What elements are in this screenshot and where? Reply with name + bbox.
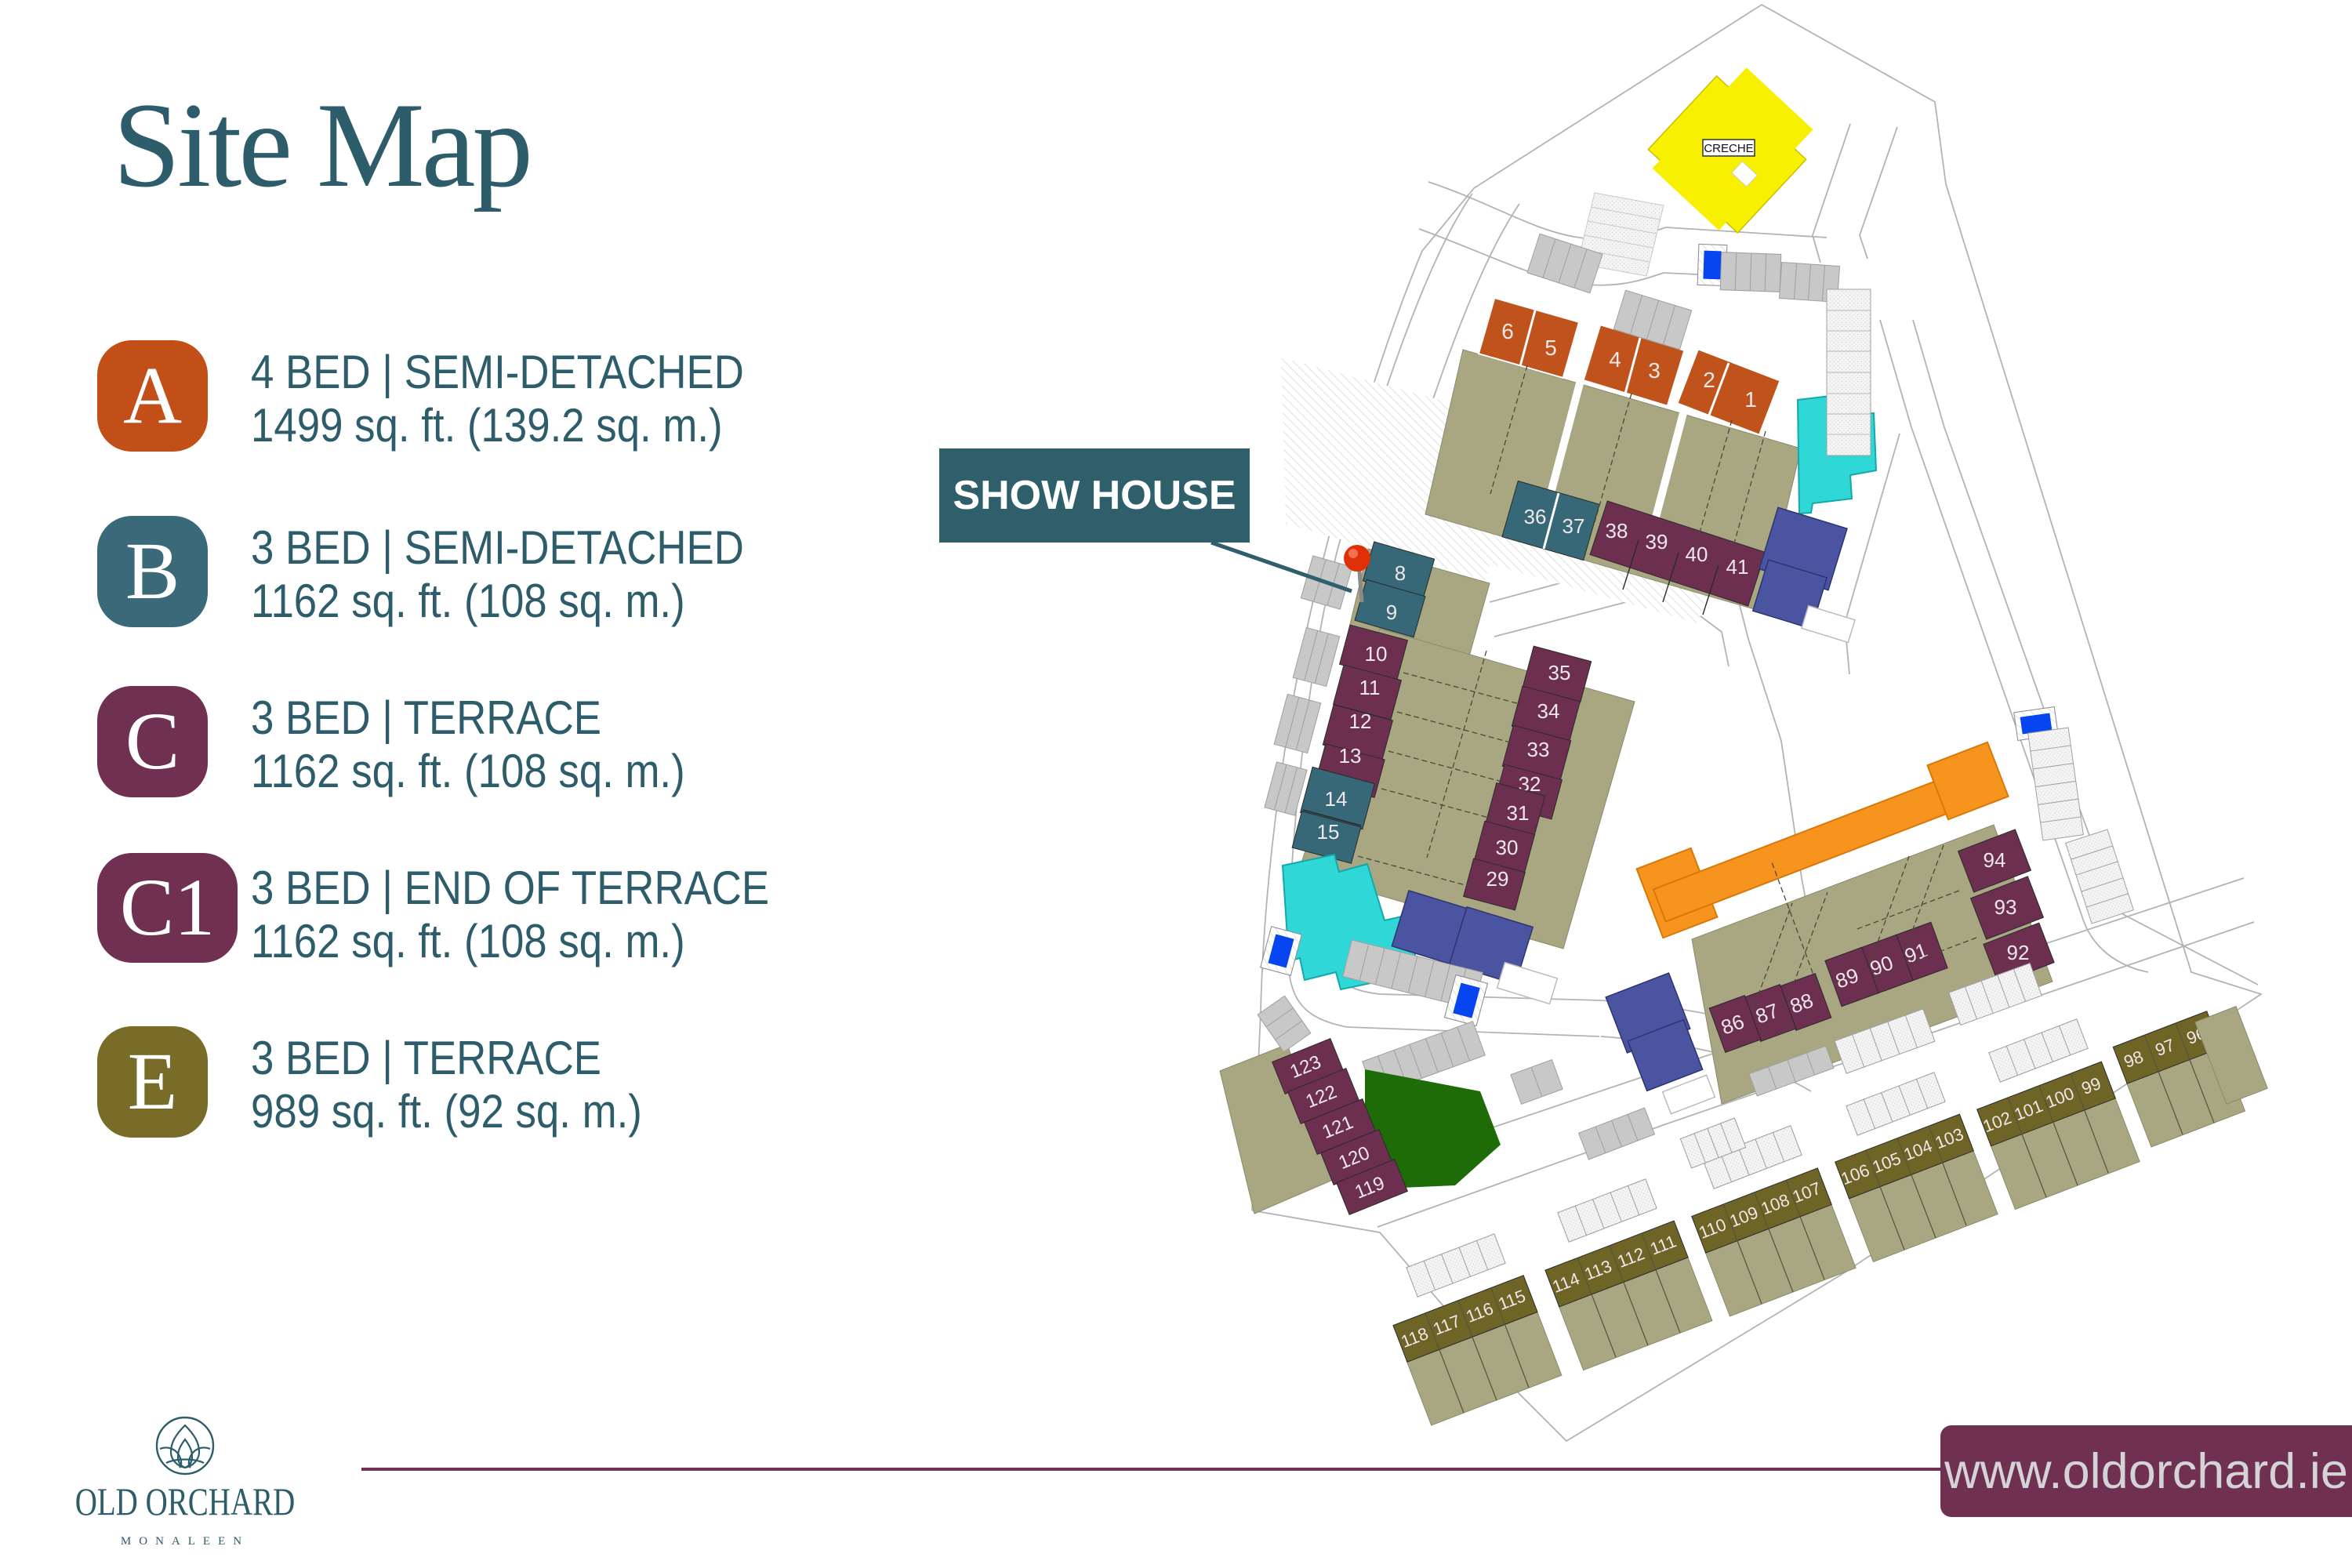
svg-text:CRECHE: CRECHE — [1704, 142, 1753, 155]
svg-text:4: 4 — [1609, 347, 1621, 372]
svg-text:94: 94 — [1984, 848, 2006, 872]
svg-text:35: 35 — [1548, 661, 1571, 684]
svg-text:37: 37 — [1563, 514, 1585, 538]
svg-text:36: 36 — [1524, 505, 1547, 528]
svg-text:34: 34 — [1537, 699, 1560, 723]
svg-text:39: 39 — [1646, 530, 1668, 554]
svg-text:31: 31 — [1507, 801, 1530, 825]
svg-text:30: 30 — [1496, 836, 1519, 859]
svg-text:2: 2 — [1703, 368, 1715, 392]
svg-text:13: 13 — [1339, 744, 1362, 768]
svg-text:33: 33 — [1527, 738, 1550, 761]
svg-text:41: 41 — [1726, 555, 1749, 579]
svg-text:1: 1 — [1744, 387, 1757, 412]
svg-text:9: 9 — [1386, 601, 1397, 624]
svg-text:3: 3 — [1648, 358, 1661, 383]
svg-text:38: 38 — [1606, 519, 1628, 543]
svg-text:11: 11 — [1359, 676, 1381, 699]
svg-text:5: 5 — [1544, 336, 1557, 360]
svg-text:14: 14 — [1325, 787, 1348, 811]
svg-text:29: 29 — [1486, 867, 1509, 891]
svg-text:92: 92 — [2007, 941, 2030, 964]
svg-text:15: 15 — [1317, 820, 1340, 844]
svg-text:12: 12 — [1349, 710, 1372, 733]
svg-text:93: 93 — [1994, 895, 2017, 919]
svg-text:8: 8 — [1395, 561, 1406, 585]
svg-text:40: 40 — [1686, 543, 1708, 566]
svg-text:10: 10 — [1365, 642, 1388, 666]
svg-text:6: 6 — [1501, 319, 1514, 343]
